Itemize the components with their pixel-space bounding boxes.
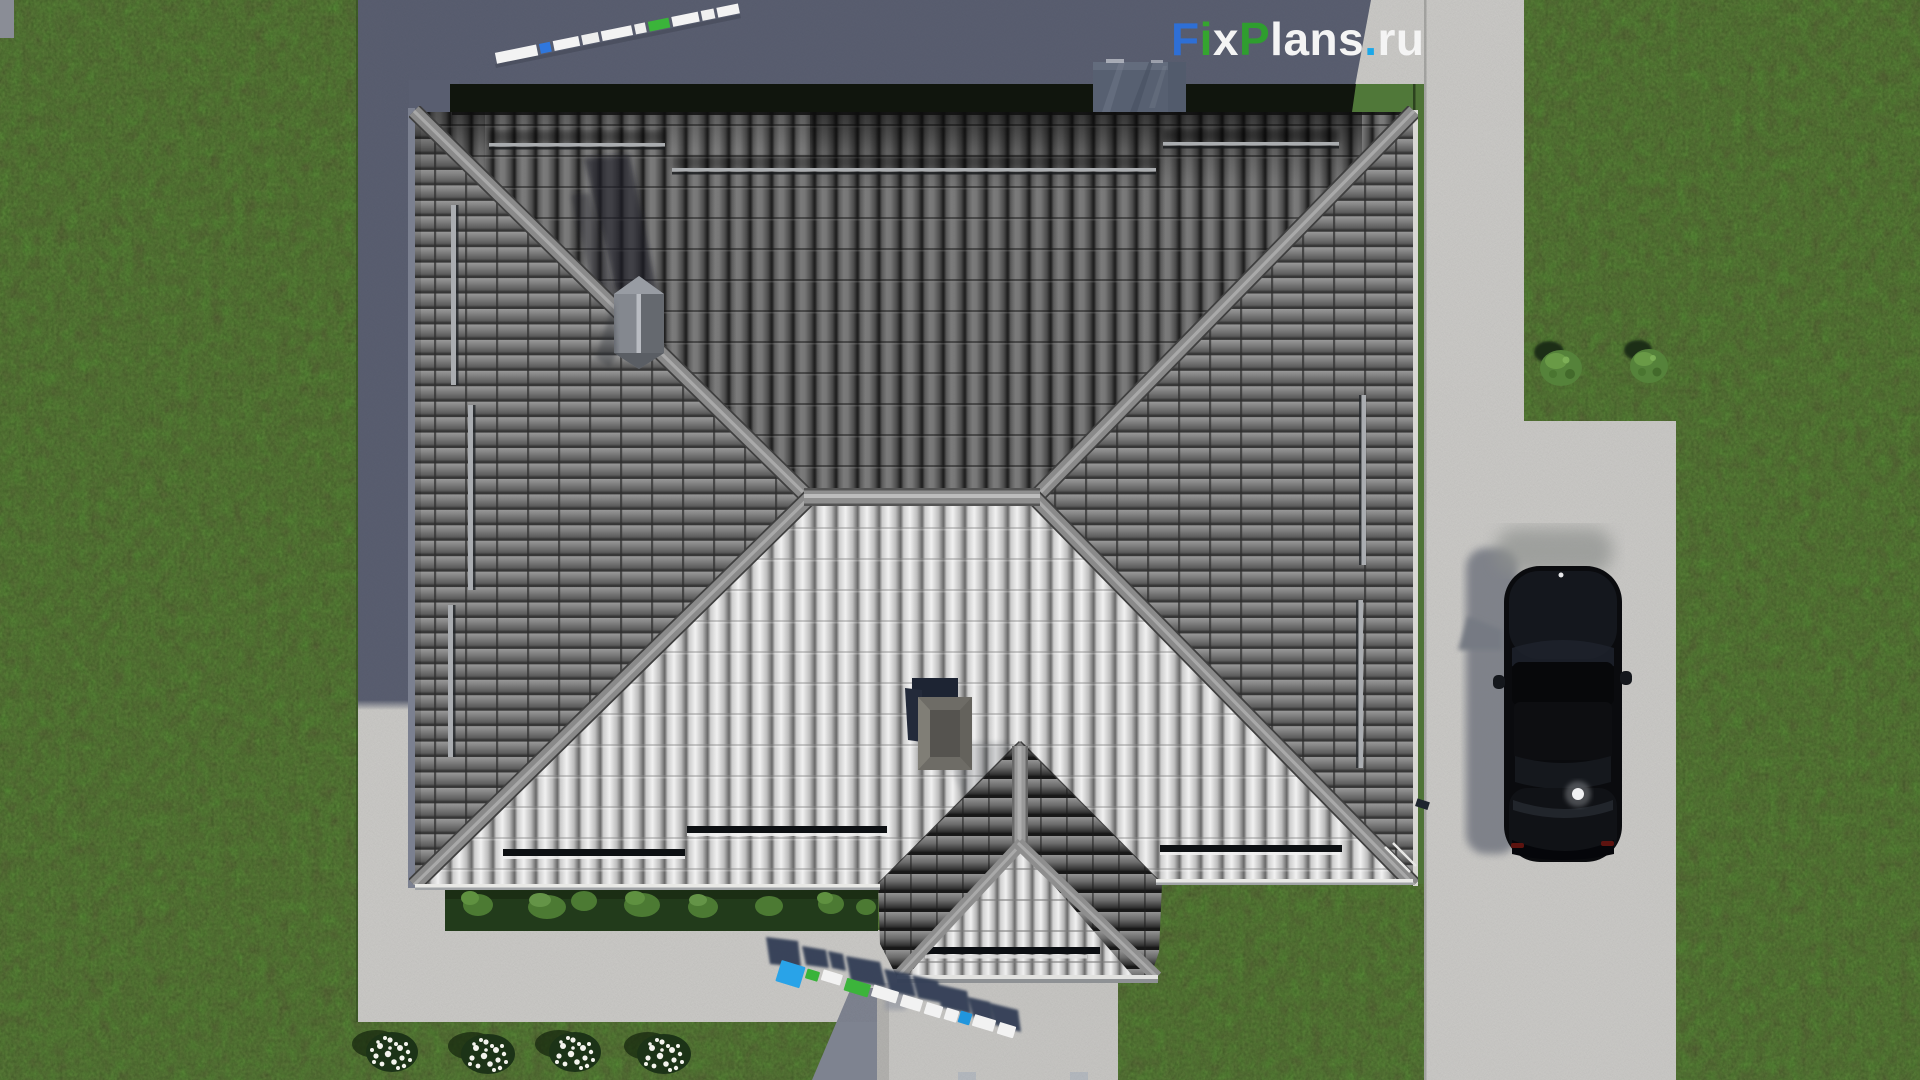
svg-text:FixPlans.ru: FixPlans.ru (1171, 13, 1425, 65)
